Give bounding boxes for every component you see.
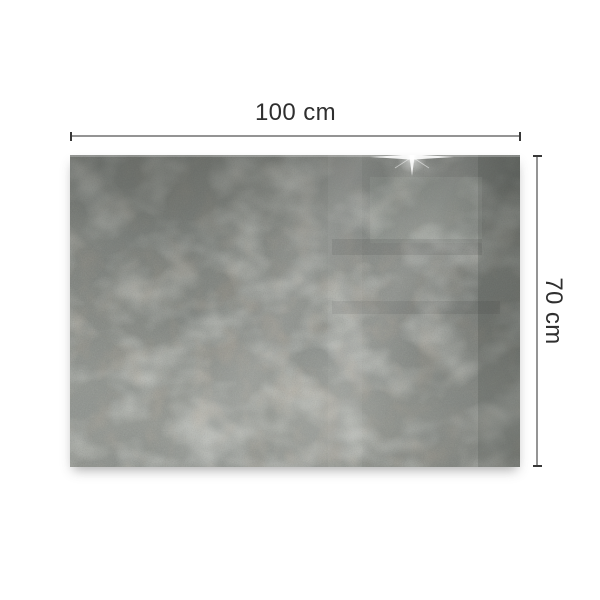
width-line-right-tick [519,132,521,141]
width-dimension-label: 100 cm [70,100,521,126]
width-dimension-line [70,135,521,137]
height-dimension-line [536,155,538,467]
height-dimension-label: 70 cm [540,261,566,361]
board-texture [70,155,520,467]
height-line-top-tick [533,155,542,157]
height-line-bottom-tick [533,465,542,467]
product-dimension-diagram: 100 cm 70 cm [0,0,600,600]
glass-board-image [70,155,520,467]
width-line-left-tick [70,132,72,141]
